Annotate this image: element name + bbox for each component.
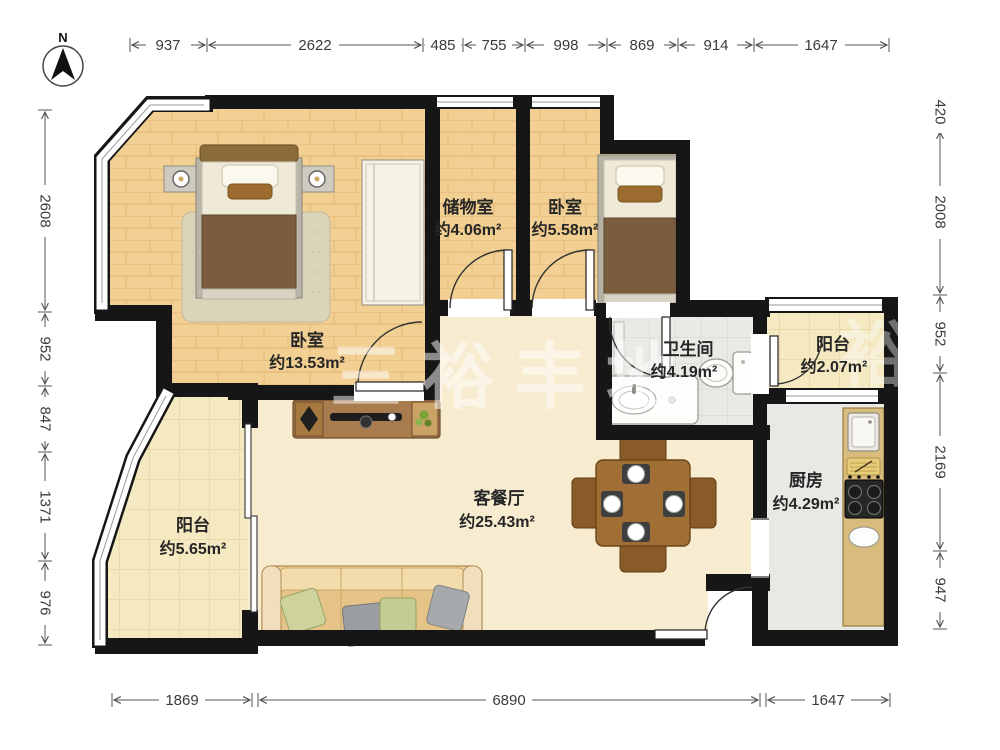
room-label-bathroom: 卫生间 [663, 339, 714, 359]
room-area-master-bedroom: 约13.53m² [269, 353, 345, 372]
dim-left-1: 952 [37, 336, 54, 361]
floor-plan-canvas: 三裕丰地 裕 卧室 约13.53m² 储物室 约4.06m² 卧室 约5.58m… [0, 0, 1000, 750]
balcony-right-window [769, 299, 882, 311]
double-bed [196, 145, 302, 299]
room-label-storage: 储物室 [443, 197, 494, 217]
room-area-balcony-left: 约5.65m² [160, 539, 227, 558]
room-area-kitchen: 约4.29m² [773, 494, 840, 513]
watermark-partial: 裕 [838, 316, 910, 396]
kitchen-counter [843, 408, 884, 626]
dim-right-4: 947 [932, 577, 949, 602]
dim-bottom-0: 1869 [165, 692, 198, 709]
dim-right-1: 2008 [932, 195, 949, 228]
room-label-bedroom2: 卧室 [548, 197, 582, 217]
dim-right-3: 2169 [932, 445, 949, 478]
north-label: N [58, 30, 67, 45]
dim-top-4: 998 [553, 37, 578, 54]
room-label-kitchen: 厨房 [789, 470, 823, 490]
dim-right-2: 952 [932, 321, 949, 346]
nightstand-right [300, 166, 334, 192]
room-area-balcony-right: 约2.07m² [801, 357, 868, 376]
kitchen-basin [849, 527, 879, 547]
room-label-master-bedroom: 卧室 [290, 330, 324, 350]
balcony-left-floor [100, 397, 248, 640]
watermark-text: 三裕丰地 [330, 338, 698, 418]
floor-plan-page: 三裕丰地 裕 卧室 约13.53m² 储物室 约4.06m² 卧室 约5.58m… [0, 0, 1000, 750]
single-bed [598, 155, 682, 308]
cutting-board [847, 458, 880, 475]
room-area-bedroom2: 约5.58m² [532, 220, 599, 239]
dim-top-2: 485 [430, 37, 455, 54]
stove [845, 475, 883, 518]
bedroom2-window [532, 97, 600, 107]
room-area-bathroom: 约4.19m² [651, 362, 718, 381]
wardrobe [362, 160, 424, 305]
dim-top-1: 2622 [298, 37, 331, 54]
dim-top-5: 869 [629, 37, 654, 54]
dim-bottom-1: 6890 [492, 692, 525, 709]
dim-left-0: 2608 [37, 194, 54, 227]
dim-bottom-2: 1647 [811, 692, 844, 709]
dim-right-0: 420 [932, 99, 949, 124]
room-label-balcony-right: 阳台 [816, 334, 850, 354]
dim-top-3: 755 [481, 37, 506, 54]
room-label-living-dining: 客餐厅 [473, 488, 525, 508]
storage-window [437, 97, 513, 107]
dim-left-2: 847 [37, 406, 54, 431]
north-compass: N [43, 30, 83, 86]
room-area-storage: 约4.06m² [435, 220, 502, 239]
dim-left-3: 1371 [37, 490, 54, 523]
kitchen-doorway [751, 518, 769, 578]
dim-top-6: 914 [703, 37, 728, 54]
dim-left-4: 976 [37, 590, 54, 615]
room-area-living-dining: 约25.43m² [459, 512, 535, 531]
dim-top-7: 1647 [804, 37, 837, 54]
room-label-balcony-left: 阳台 [176, 515, 210, 535]
kitchen-sink [848, 413, 879, 451]
dim-top-0: 937 [155, 37, 180, 54]
nightstand-left [164, 166, 198, 192]
